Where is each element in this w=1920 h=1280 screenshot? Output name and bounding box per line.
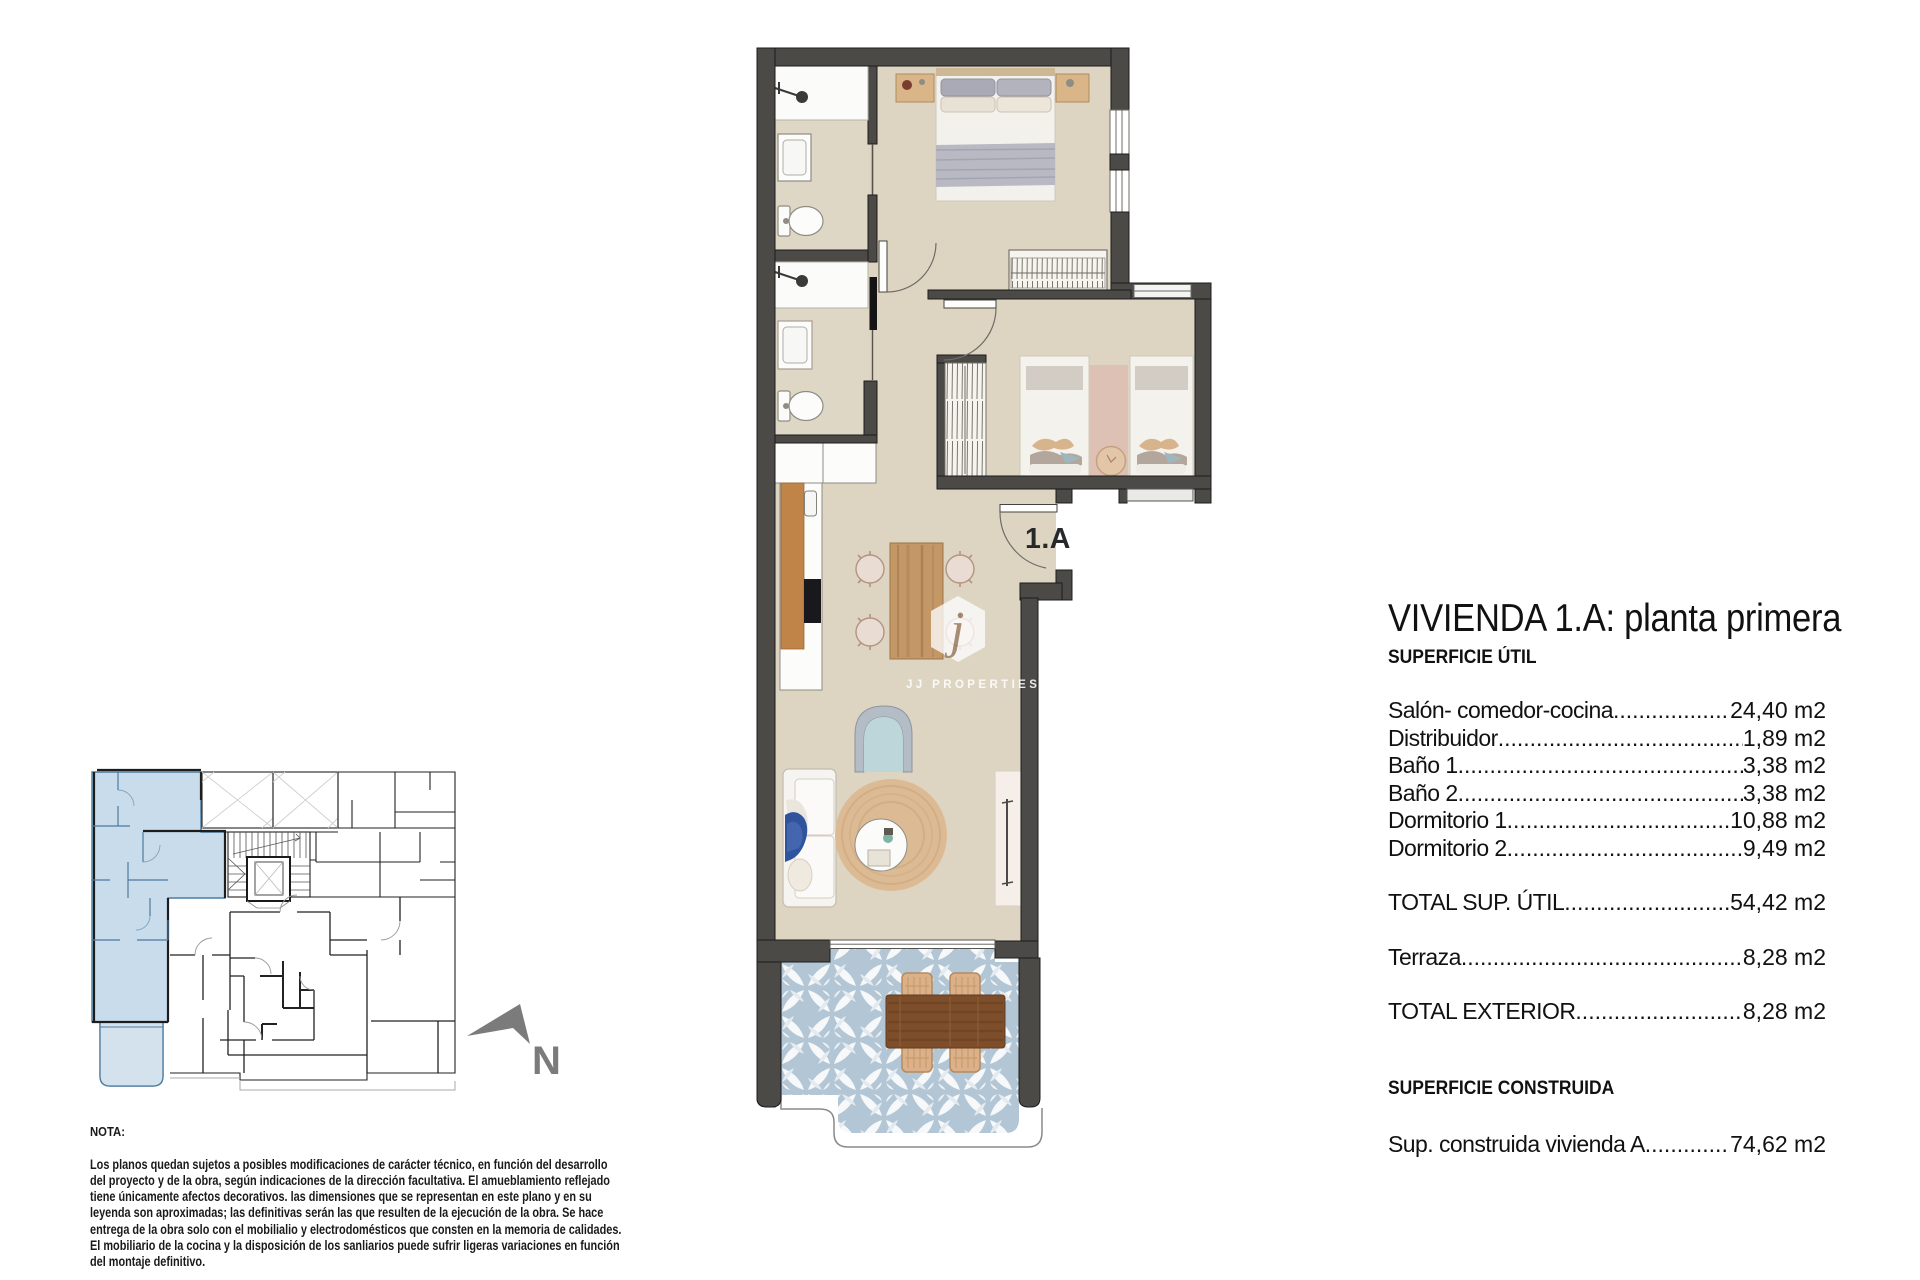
svg-text:N: N	[532, 1039, 561, 1083]
svg-text:1.A: 1.A	[1025, 523, 1071, 555]
svg-text:JJ PROPERTIES: JJ PROPERTIES	[906, 679, 1040, 691]
svg-text:REAL ESTATE: REAL ESTATE	[944, 698, 1015, 705]
